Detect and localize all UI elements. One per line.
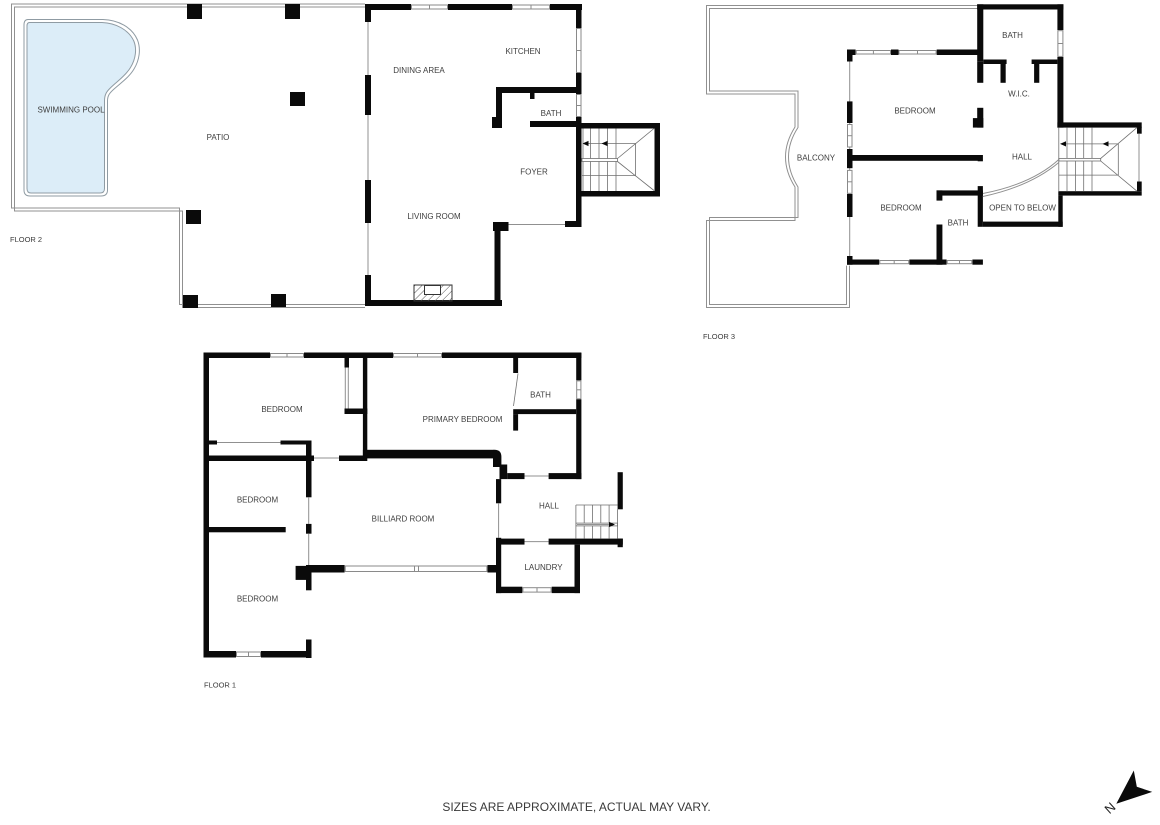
svg-text:HALL: HALL	[1012, 153, 1033, 162]
svg-text:BEDROOM: BEDROOM	[880, 204, 922, 213]
svg-text:BATH: BATH	[948, 219, 969, 228]
svg-text:LIVING ROOM: LIVING ROOM	[407, 212, 461, 221]
svg-text:BATH: BATH	[530, 391, 551, 400]
svg-text:FLOOR 3: FLOOR 3	[703, 332, 735, 341]
svg-text:W.I.C.: W.I.C.	[1008, 90, 1030, 99]
svg-text:SWIMMING POOL: SWIMMING POOL	[37, 106, 105, 115]
svg-text:KITCHEN: KITCHEN	[505, 47, 540, 56]
svg-text:BATH: BATH	[541, 109, 562, 118]
svg-text:BEDROOM: BEDROOM	[894, 107, 936, 116]
svg-text:PATIO: PATIO	[207, 133, 230, 142]
svg-text:BILLIARD ROOM: BILLIARD ROOM	[372, 515, 435, 524]
svg-text:FLOOR 1: FLOOR 1	[204, 681, 236, 690]
svg-text:SIZES ARE APPROXIMATE, ACTUAL: SIZES ARE APPROXIMATE, ACTUAL MAY VARY.	[442, 800, 710, 814]
svg-text:OPEN TO BELOW: OPEN TO BELOW	[989, 204, 1056, 213]
svg-text:BATH: BATH	[1002, 31, 1023, 40]
svg-text:BEDROOM: BEDROOM	[237, 595, 279, 604]
svg-text:PRIMARY BEDROOM: PRIMARY BEDROOM	[423, 415, 503, 424]
svg-text:BEDROOM: BEDROOM	[237, 496, 279, 505]
svg-text:FOYER: FOYER	[520, 168, 548, 177]
svg-text:FLOOR 2: FLOOR 2	[10, 235, 42, 244]
svg-text:DINING AREA: DINING AREA	[393, 66, 445, 75]
svg-text:BEDROOM: BEDROOM	[261, 405, 303, 414]
svg-text:BALCONY: BALCONY	[797, 154, 836, 163]
svg-text:HALL: HALL	[539, 502, 560, 511]
svg-text:LAUNDRY: LAUNDRY	[524, 563, 563, 572]
